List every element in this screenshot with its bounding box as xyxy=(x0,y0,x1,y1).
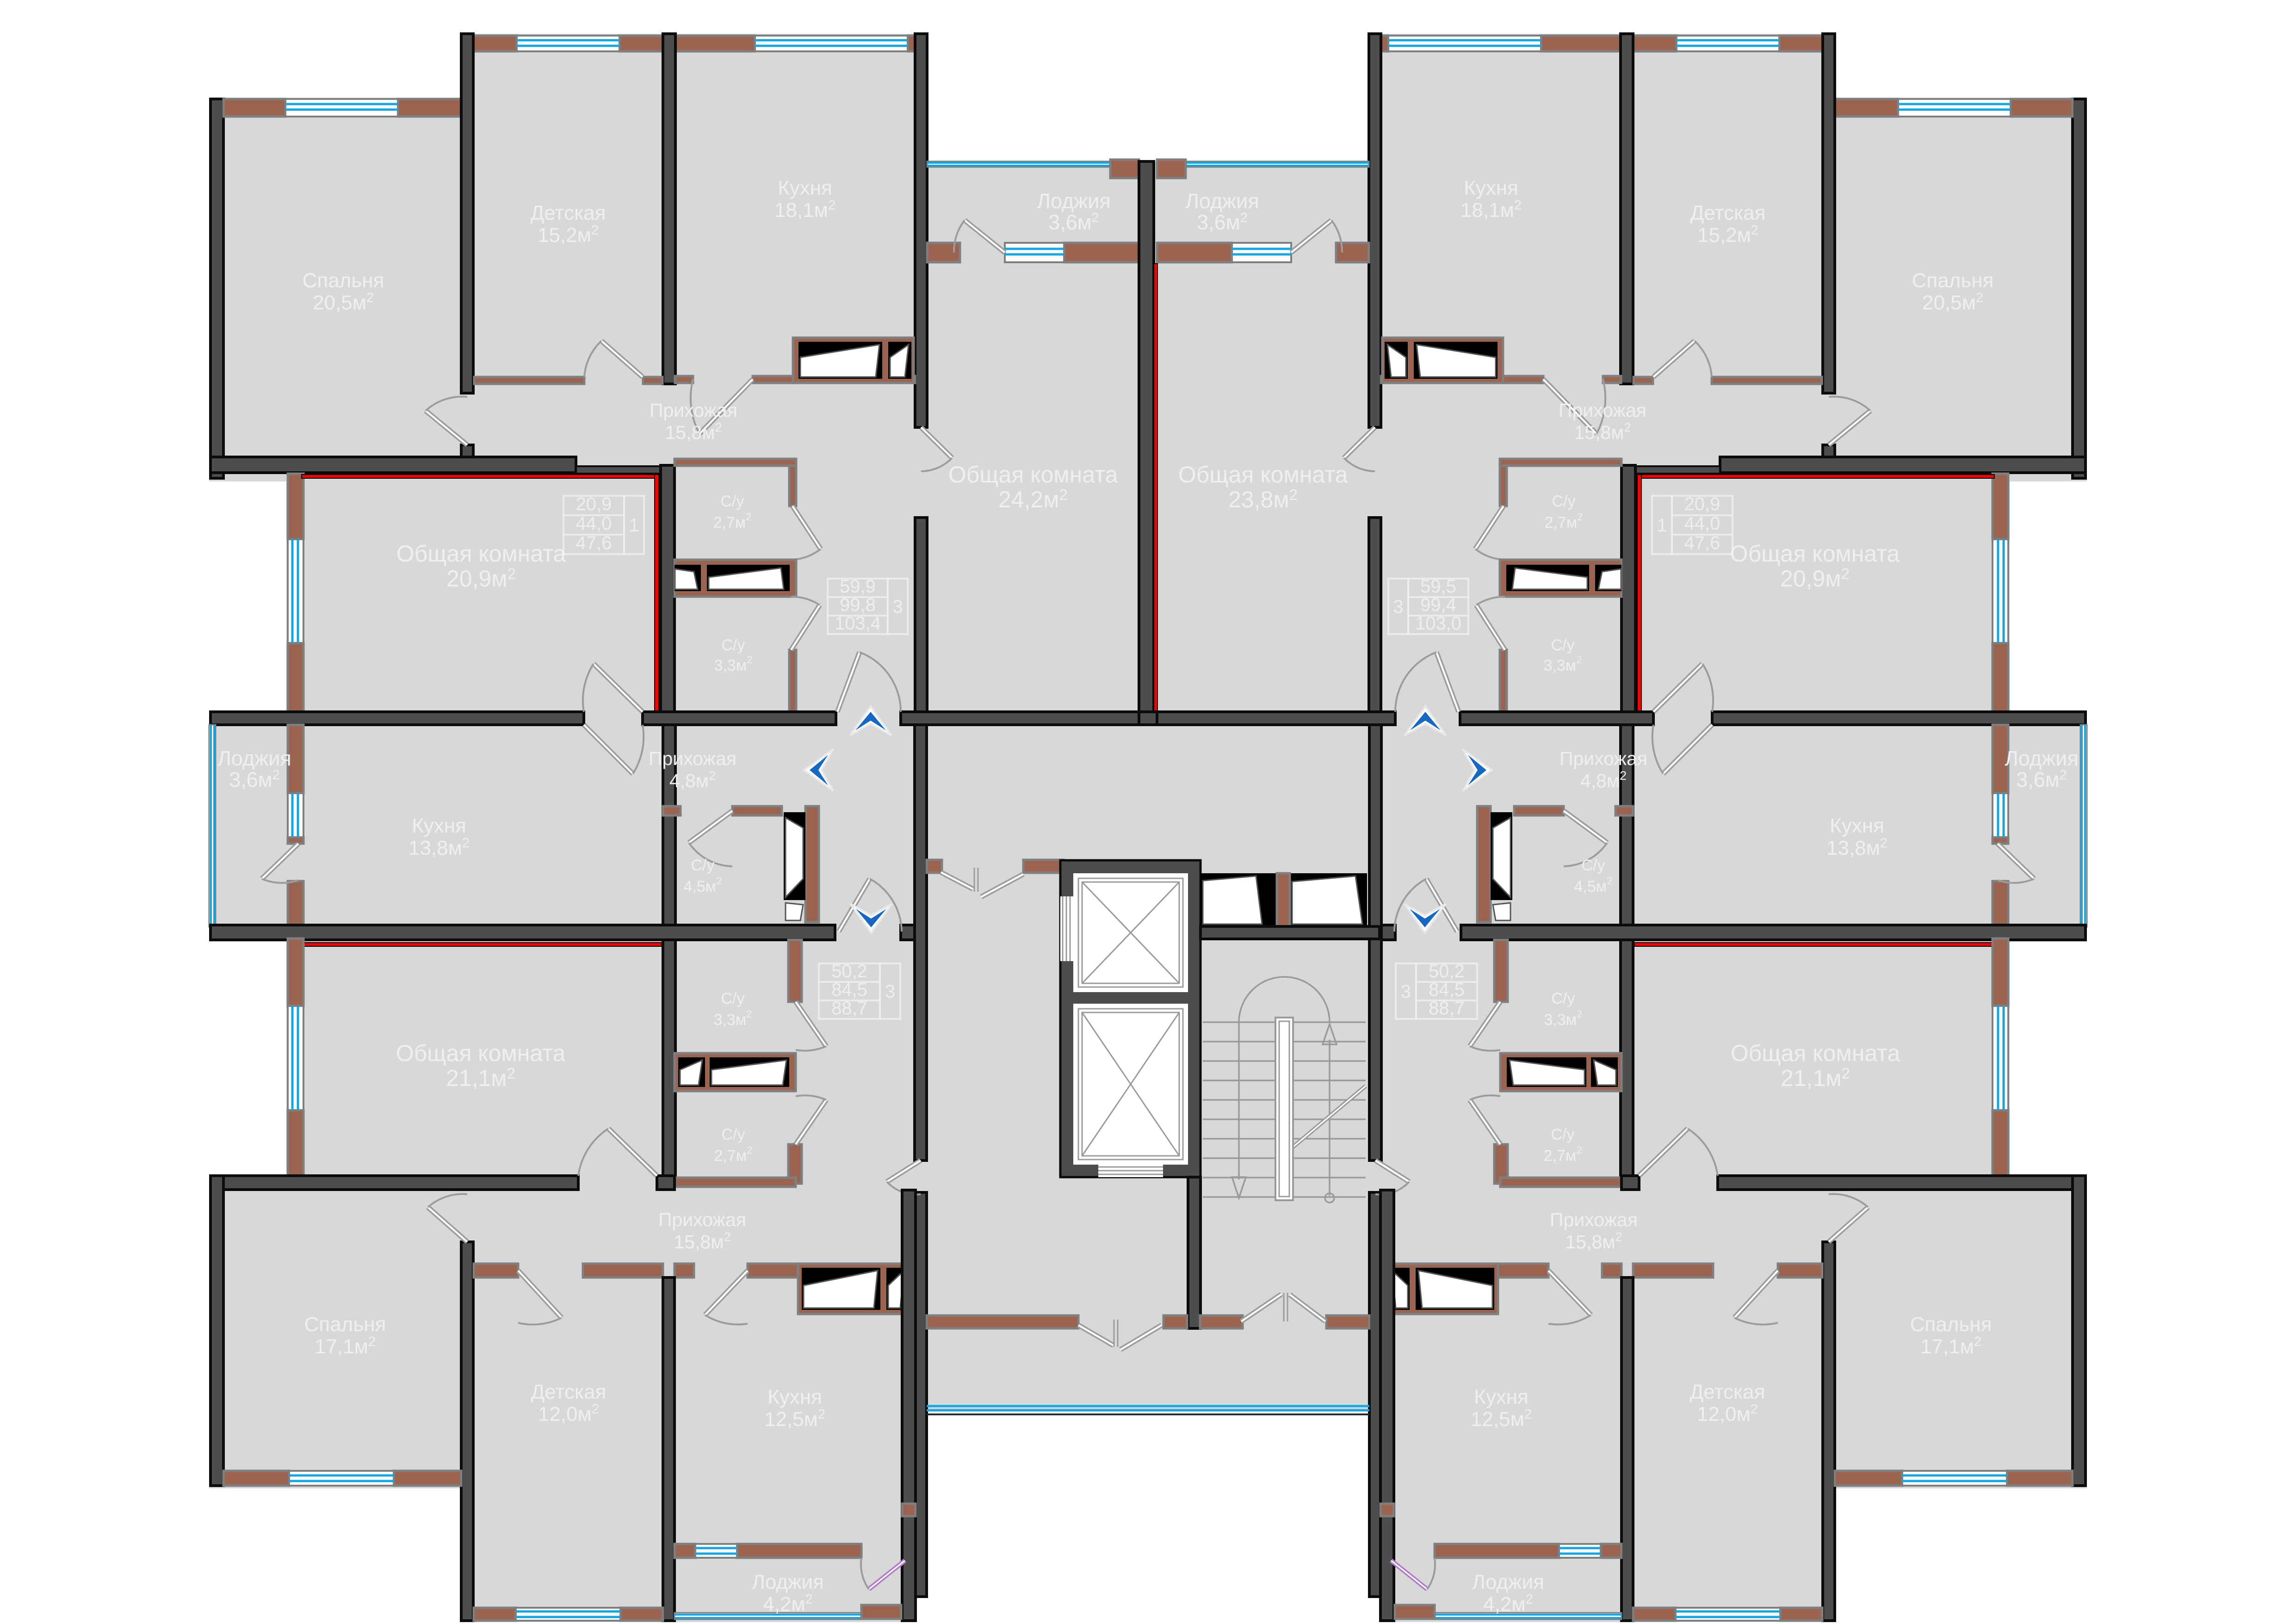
svg-text:3,6м2: 3,6м2 xyxy=(1197,210,1248,234)
svg-text:99,4: 99,4 xyxy=(1420,595,1456,615)
svg-text:Прихожая: Прихожая xyxy=(1550,1209,1638,1230)
svg-text:2,7м2: 2,7м2 xyxy=(1545,511,1583,531)
svg-text:Спальня: Спальня xyxy=(304,1313,386,1336)
svg-text:15,2м2: 15,2м2 xyxy=(538,223,599,247)
svg-text:3,6м2: 3,6м2 xyxy=(2016,768,2067,791)
svg-text:3,3м2: 3,3м2 xyxy=(1544,1008,1583,1029)
svg-text:Детская: Детская xyxy=(531,1381,606,1403)
svg-text:2,7м2: 2,7м2 xyxy=(713,511,752,531)
svg-text:Общая комната: Общая комната xyxy=(948,462,1118,488)
svg-text:Прихожая: Прихожая xyxy=(650,400,737,421)
svg-text:Прихожая: Прихожая xyxy=(649,748,736,769)
svg-text:15,2м2: 15,2м2 xyxy=(1697,223,1758,247)
svg-text:С/у: С/у xyxy=(1551,1126,1575,1143)
svg-text:3: 3 xyxy=(892,597,903,617)
svg-text:Спальня: Спальня xyxy=(1912,269,1994,292)
svg-text:20,9: 20,9 xyxy=(1684,494,1720,514)
svg-text:С/у: С/у xyxy=(1552,493,1576,510)
svg-text:50,2: 50,2 xyxy=(831,961,867,981)
svg-text:2,7м2: 2,7м2 xyxy=(1544,1144,1582,1165)
svg-text:С/у: С/у xyxy=(1582,857,1605,874)
svg-text:Прихожая: Прихожая xyxy=(1560,748,1647,769)
svg-text:4,5м2: 4,5м2 xyxy=(684,875,722,895)
svg-text:Спальня: Спальня xyxy=(303,269,384,292)
svg-text:Лоджия: Лоджия xyxy=(1037,189,1110,213)
svg-text:84,5: 84,5 xyxy=(1429,980,1465,1000)
svg-text:Лоджия: Лоджия xyxy=(752,1571,824,1593)
svg-text:47,6: 47,6 xyxy=(1684,533,1720,553)
svg-text:20,5м2: 20,5м2 xyxy=(313,290,374,314)
svg-text:Общая комната: Общая комната xyxy=(1730,541,1900,567)
svg-text:Кухня: Кухня xyxy=(1474,1386,1529,1408)
svg-text:Прихожая: Прихожая xyxy=(658,1209,746,1230)
svg-text:12,5м2: 12,5м2 xyxy=(1471,1407,1532,1431)
svg-text:15,8м2: 15,8м2 xyxy=(674,1230,730,1253)
svg-text:С/у: С/у xyxy=(1551,636,1575,654)
svg-text:20,9м2: 20,9м2 xyxy=(1780,565,1850,592)
svg-text:59,9: 59,9 xyxy=(840,576,876,597)
svg-text:Лоджия: Лоджия xyxy=(1472,1571,1544,1593)
svg-text:Кухня: Кухня xyxy=(767,1386,822,1408)
svg-text:17,1м2: 17,1м2 xyxy=(1920,1334,1981,1358)
svg-text:17,1м2: 17,1м2 xyxy=(315,1334,376,1358)
svg-text:15,8м2: 15,8м2 xyxy=(1574,420,1631,443)
svg-text:44,0: 44,0 xyxy=(576,513,612,534)
svg-text:103,0: 103,0 xyxy=(1415,613,1461,634)
svg-text:2,7м2: 2,7м2 xyxy=(714,1144,753,1165)
svg-text:Кухня: Кухня xyxy=(412,815,466,837)
svg-text:Общая комната: Общая комната xyxy=(396,1040,566,1066)
svg-text:99,8: 99,8 xyxy=(840,595,876,615)
svg-text:3,6м2: 3,6м2 xyxy=(1048,210,1099,234)
svg-text:3,3м2: 3,3м2 xyxy=(1544,654,1582,674)
svg-text:4,8м2: 4,8м2 xyxy=(1580,769,1627,791)
svg-text:С/у: С/у xyxy=(721,493,744,510)
svg-text:20,9: 20,9 xyxy=(576,494,612,514)
svg-text:1: 1 xyxy=(1657,515,1667,536)
svg-text:47,6: 47,6 xyxy=(576,533,612,553)
svg-text:12,0м2: 12,0м2 xyxy=(538,1402,599,1426)
svg-text:Лоджия: Лоджия xyxy=(1185,189,1259,213)
svg-text:3,3м2: 3,3м2 xyxy=(714,654,753,674)
svg-text:50,2: 50,2 xyxy=(1429,961,1465,981)
svg-text:Детская: Детская xyxy=(531,202,606,224)
svg-text:С/у: С/у xyxy=(722,636,745,654)
svg-text:59,5: 59,5 xyxy=(1420,576,1456,597)
svg-text:Общая комната: Общая комната xyxy=(1178,462,1348,488)
svg-text:4,8м2: 4,8м2 xyxy=(669,769,716,791)
svg-text:88,7: 88,7 xyxy=(1429,998,1465,1018)
svg-text:15,8м2: 15,8м2 xyxy=(1565,1230,1622,1253)
svg-text:18,1м2: 18,1м2 xyxy=(1461,198,1522,222)
svg-text:Детская: Детская xyxy=(1690,1381,1765,1403)
svg-text:С/у: С/у xyxy=(1552,990,1575,1007)
svg-text:Кухня: Кухня xyxy=(1464,177,1518,199)
svg-text:21,1м2: 21,1м2 xyxy=(446,1065,515,1091)
svg-text:3: 3 xyxy=(1401,981,1411,1002)
svg-text:20,9м2: 20,9м2 xyxy=(446,565,516,592)
svg-text:С/у: С/у xyxy=(691,857,715,874)
svg-text:13,8м2: 13,8м2 xyxy=(408,836,470,859)
svg-text:3,6м2: 3,6м2 xyxy=(229,768,280,791)
svg-text:1: 1 xyxy=(629,515,639,536)
svg-text:Общая комната: Общая комната xyxy=(1731,1040,1900,1066)
svg-text:21,1м2: 21,1м2 xyxy=(1781,1065,1850,1091)
svg-text:3: 3 xyxy=(1393,597,1403,617)
svg-text:103,4: 103,4 xyxy=(835,613,881,634)
svg-text:С/у: С/у xyxy=(722,1126,745,1143)
svg-text:3: 3 xyxy=(885,981,895,1002)
svg-text:Кухня: Кухня xyxy=(778,177,832,199)
svg-text:24,2м2: 24,2м2 xyxy=(998,486,1068,512)
svg-text:Лоджия: Лоджия xyxy=(217,747,291,770)
svg-text:Прихожая: Прихожая xyxy=(1559,400,1646,421)
svg-text:23,8м2: 23,8м2 xyxy=(1228,486,1298,512)
svg-text:Спальня: Спальня xyxy=(1910,1313,1992,1336)
svg-text:13,8м2: 13,8м2 xyxy=(1826,836,1888,859)
svg-text:Общая комната: Общая комната xyxy=(396,541,566,567)
svg-text:4,5м2: 4,5м2 xyxy=(1574,875,1613,895)
svg-text:84,5: 84,5 xyxy=(831,980,867,1000)
svg-text:12,5м2: 12,5м2 xyxy=(764,1407,825,1431)
svg-text:Кухня: Кухня xyxy=(1830,815,1884,837)
svg-text:88,7: 88,7 xyxy=(831,998,867,1018)
svg-text:12,0м2: 12,0м2 xyxy=(1697,1402,1758,1426)
svg-text:Лоджия: Лоджия xyxy=(2005,747,2078,770)
svg-text:44,0: 44,0 xyxy=(1684,513,1720,534)
svg-text:15,8м2: 15,8м2 xyxy=(665,420,722,443)
svg-text:18,1м2: 18,1м2 xyxy=(774,198,835,222)
svg-text:20,5м2: 20,5м2 xyxy=(1922,290,1983,314)
svg-text:Детская: Детская xyxy=(1690,202,1766,224)
svg-text:С/у: С/у xyxy=(721,990,745,1007)
svg-text:3,3м2: 3,3м2 xyxy=(714,1008,752,1029)
